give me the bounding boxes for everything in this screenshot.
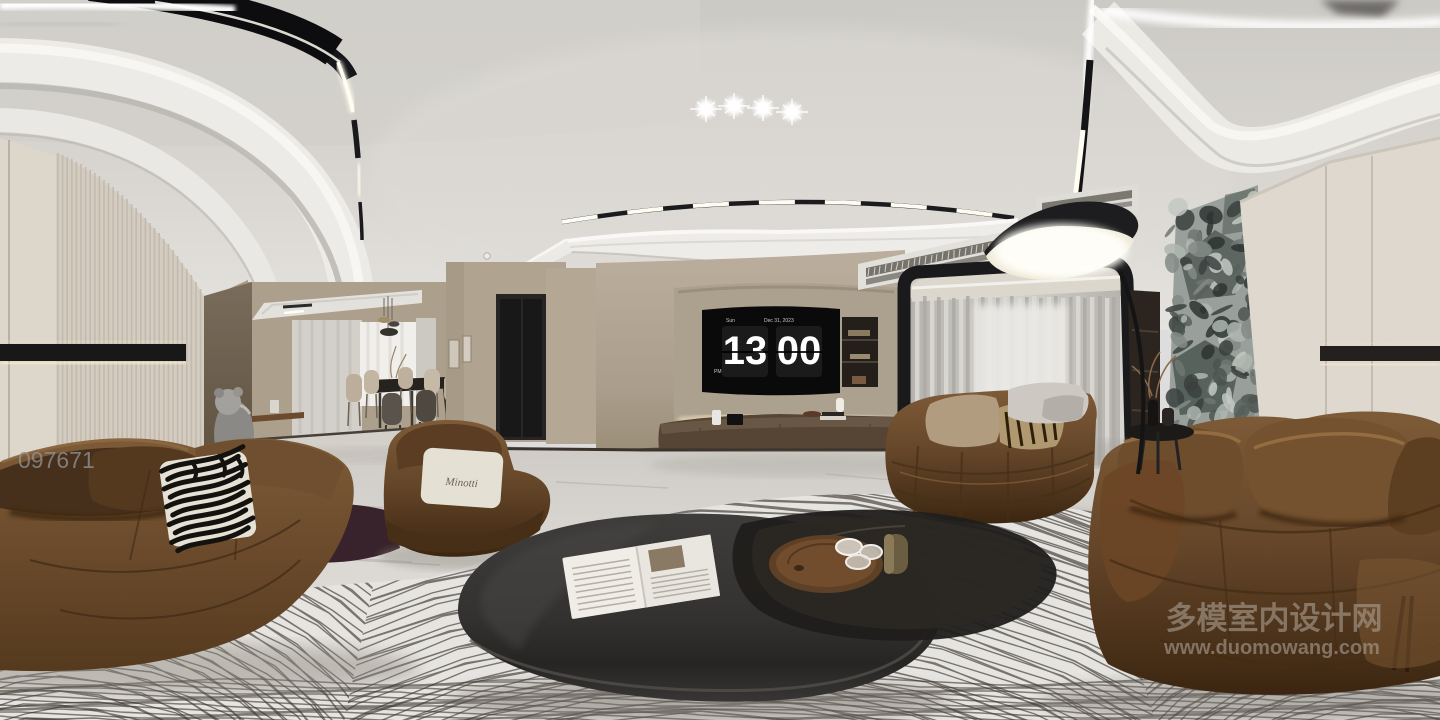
svg-text:097671: 097671 bbox=[18, 447, 95, 473]
svg-text:Minotti: Minotti bbox=[444, 476, 478, 490]
svg-text:多模室内设计网: 多模室内设计网 bbox=[1166, 601, 1383, 636]
svg-text:www.duomowang.com: www.duomowang.com bbox=[1163, 637, 1380, 659]
